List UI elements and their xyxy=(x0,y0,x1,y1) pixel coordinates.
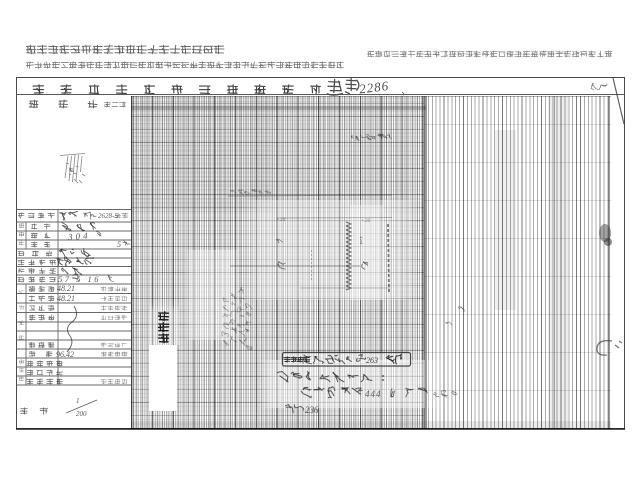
svg-text:5: 5 xyxy=(117,240,121,249)
svg-text:2628-5: 2628-5 xyxy=(98,212,118,220)
svg-text:48.21: 48.21 xyxy=(57,284,75,293)
svg-text:236: 236 xyxy=(305,405,319,415)
svg-text:48.21: 48.21 xyxy=(57,294,75,303)
svg-text:304: 304 xyxy=(67,230,91,242)
svg-text:+26: +26 xyxy=(361,218,370,224)
svg-text:444: 444 xyxy=(365,389,382,399)
svg-text:200: 200 xyxy=(76,410,87,418)
svg-text:1: 1 xyxy=(76,397,80,405)
svg-text:+24: +24 xyxy=(276,216,285,223)
svg-text:2286: 2286 xyxy=(358,78,390,97)
svg-text:263: 263 xyxy=(366,356,378,365)
svg-text:57 5 16: 57 5 16 xyxy=(58,274,101,284)
svg-text:96.42: 96.42 xyxy=(56,350,74,359)
